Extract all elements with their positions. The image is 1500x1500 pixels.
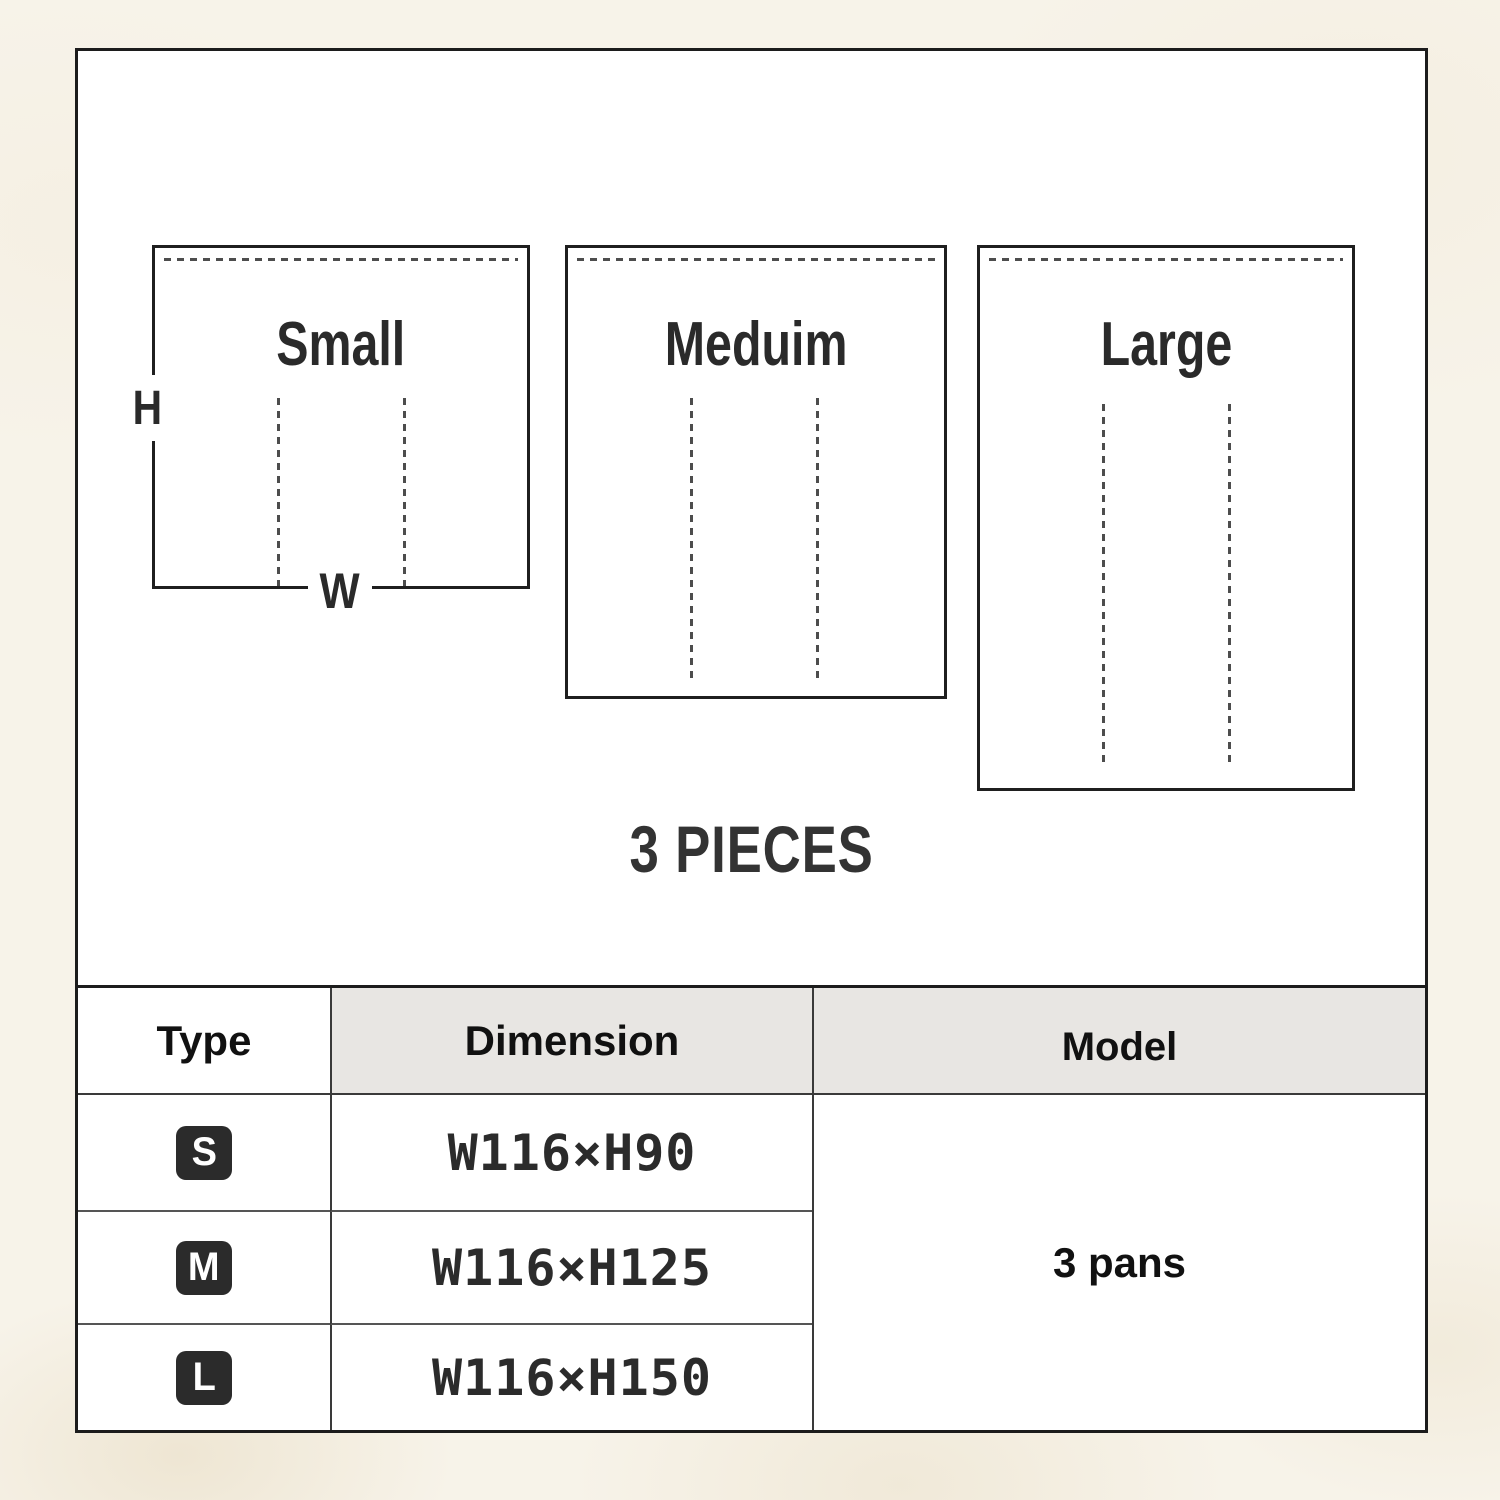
size-spec-table: Type Dimension Model S W116×H90 M [78, 985, 1425, 1430]
table-row-type-cell: L [78, 1325, 330, 1430]
fold-line-vertical-dashed [690, 398, 693, 680]
dimension-value-m: W116×H125 [330, 1212, 812, 1325]
size-box-medium: Meduim [565, 245, 947, 699]
table-header-model: Model [812, 988, 1425, 1095]
size-badge-s: S [176, 1126, 232, 1180]
pieces-count-caption: 3 PIECES [78, 809, 1425, 889]
dimension-value-l: W116×H150 [330, 1325, 812, 1430]
fold-line-vertical-dashed [1102, 404, 1105, 766]
size-box-small: Small [152, 245, 530, 589]
fold-line-vertical-dashed [403, 398, 406, 586]
height-dimension-label: H [122, 375, 172, 441]
size-box-label-large: Large [980, 296, 1352, 392]
size-box-large: Large [977, 245, 1355, 791]
fold-line-top-dashed [989, 258, 1343, 261]
dimension-value-s: W116×H90 [330, 1095, 812, 1212]
table-row-type-cell: M [78, 1212, 330, 1325]
width-dimension-label: W [308, 559, 372, 623]
fold-line-vertical-dashed [277, 398, 280, 586]
fold-line-top-dashed [164, 258, 518, 261]
size-box-label-small: Small [155, 296, 527, 392]
size-box-label-medium: Meduim [568, 296, 944, 392]
size-badge-l: L [176, 1351, 232, 1405]
size-box-label-text: Meduim [665, 309, 848, 380]
size-box-label-text: Small [276, 309, 405, 380]
size-badge-m: M [176, 1241, 232, 1295]
fold-line-vertical-dashed [816, 398, 819, 680]
outer-frame: Small Meduim Large H [75, 48, 1428, 1433]
size-box-label-text: Large [1100, 309, 1232, 380]
model-merged-cell: 3 pans [812, 1095, 1425, 1430]
size-chart-canvas: Small Meduim Large H [0, 0, 1500, 1500]
fold-line-vertical-dashed [1228, 404, 1231, 766]
fold-line-top-dashed [577, 258, 935, 261]
table-row-type-cell: S [78, 1095, 330, 1212]
table-header-type: Type [78, 988, 330, 1095]
table-header-dimension: Dimension [330, 988, 812, 1095]
